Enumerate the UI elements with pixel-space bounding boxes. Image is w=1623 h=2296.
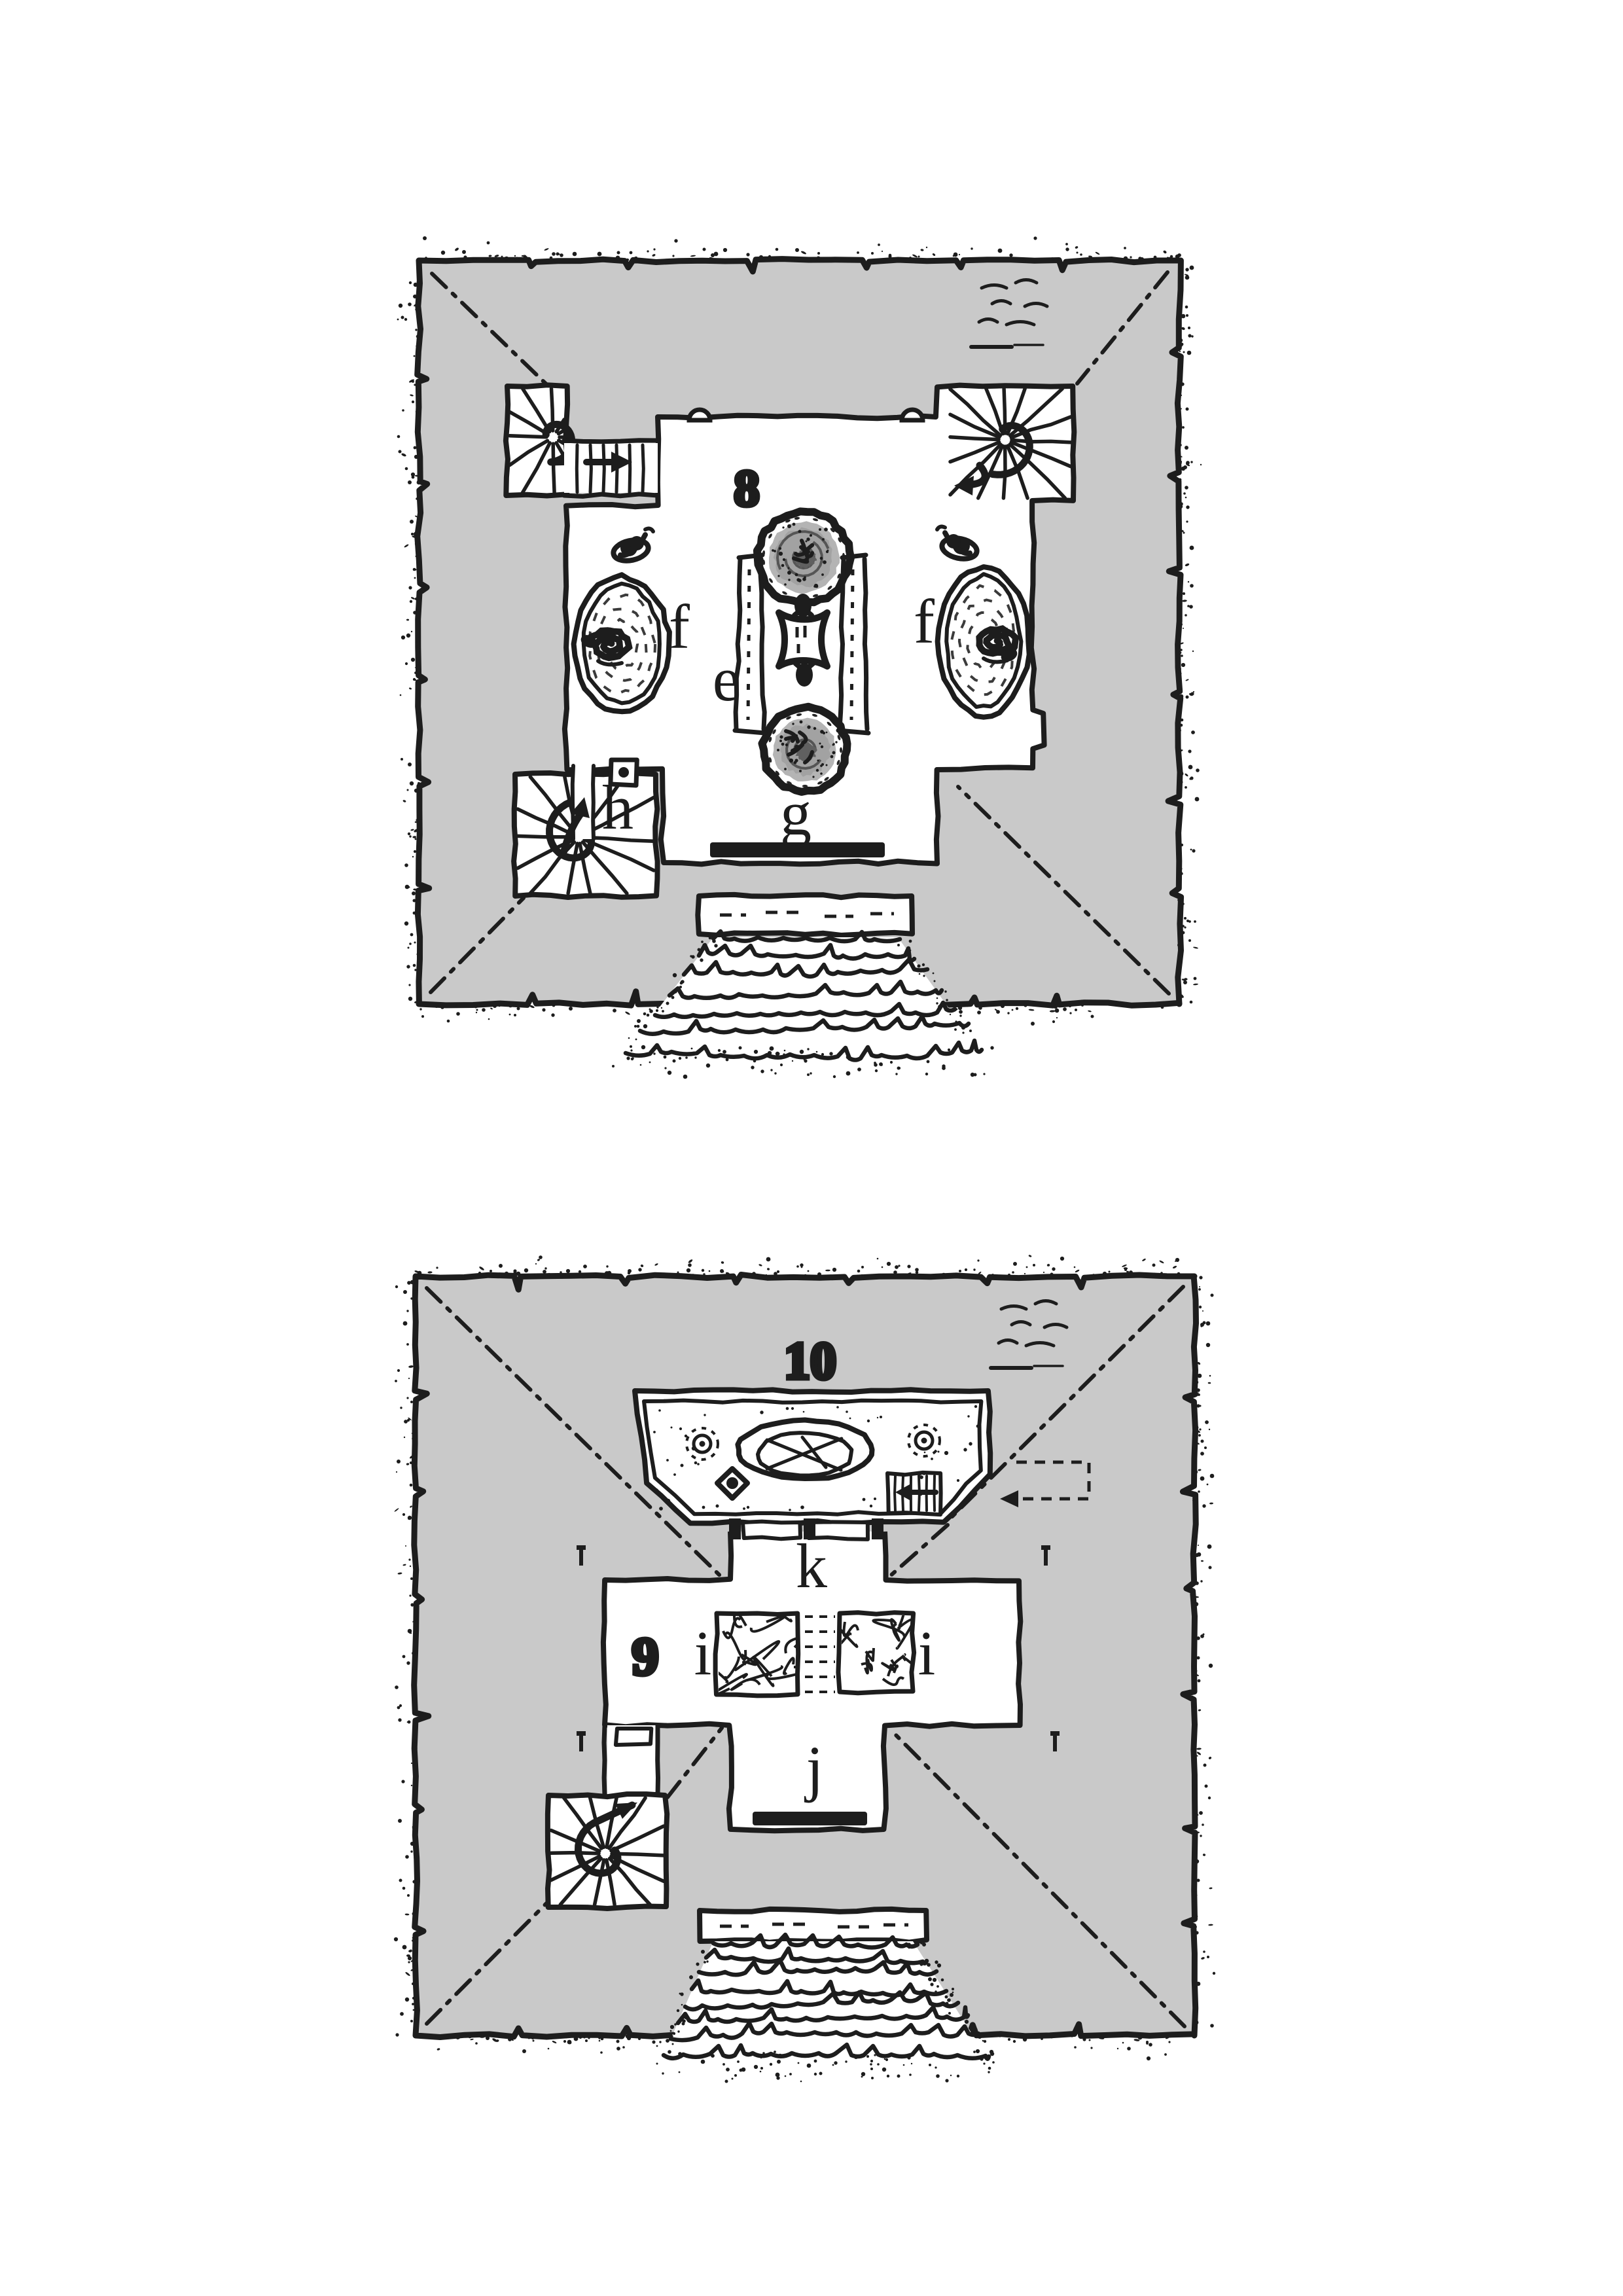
svg-text:9: 9	[632, 1626, 659, 1686]
svg-text:k: k	[796, 1531, 827, 1601]
svg-text:j: j	[804, 1733, 824, 1803]
svg-text:g: g	[780, 778, 811, 848]
svg-text:f: f	[914, 586, 935, 656]
svg-text:e: e	[713, 644, 741, 714]
svg-text:i: i	[918, 1618, 936, 1688]
svg-text:i: i	[694, 1618, 712, 1688]
svg-text:h: h	[602, 772, 633, 842]
svg-text:f: f	[669, 592, 690, 662]
svg-text:8: 8	[734, 459, 760, 516]
svg-text:10: 10	[784, 1333, 836, 1390]
